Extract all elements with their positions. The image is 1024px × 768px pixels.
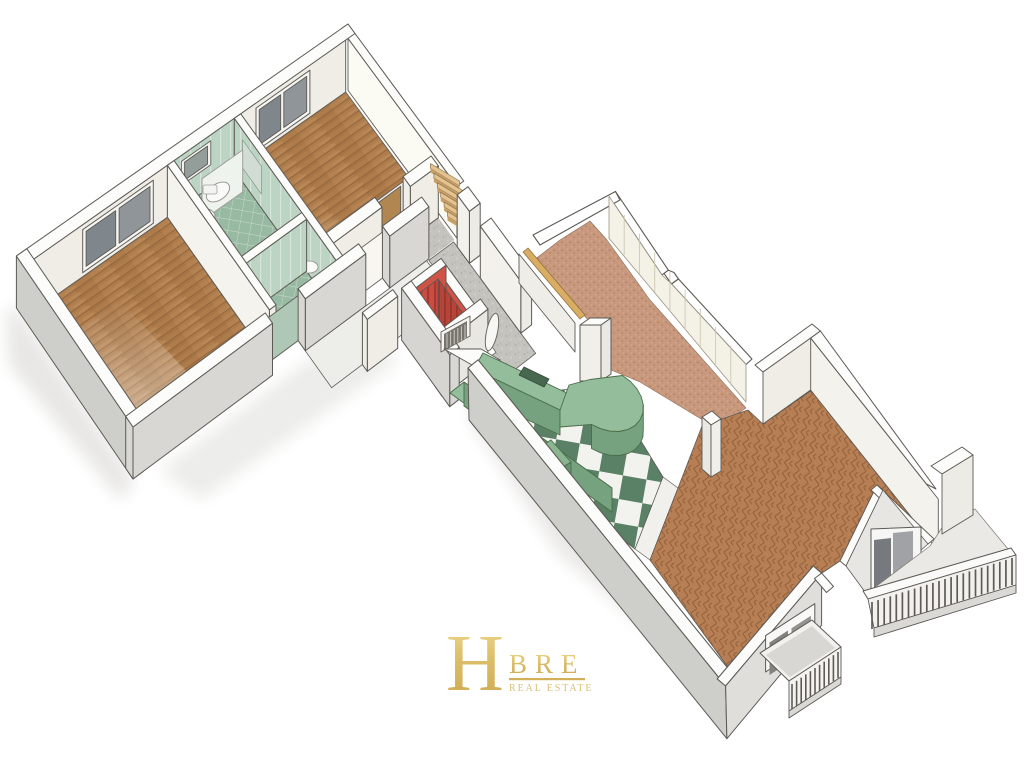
svg-text:BRE: BRE <box>509 649 586 679</box>
svg-text:H: H <box>446 620 504 708</box>
svg-text:REAL ESTATE: REAL ESTATE <box>509 683 593 694</box>
